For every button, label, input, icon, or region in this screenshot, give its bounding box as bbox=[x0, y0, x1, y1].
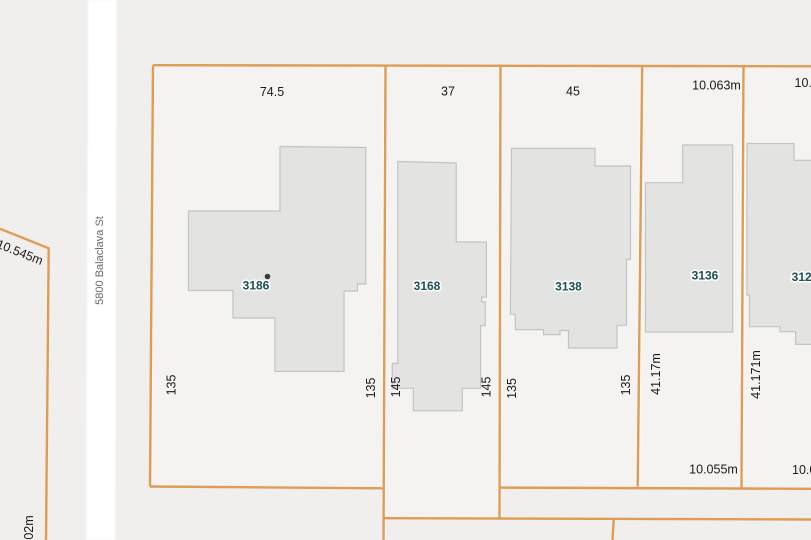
svg-text:5800 Balaclava St: 5800 Balaclava St bbox=[94, 216, 106, 305]
svg-text:3168: 3168 bbox=[414, 279, 441, 293]
svg-text:45: 45 bbox=[566, 85, 580, 99]
svg-text:10.055m: 10.055m bbox=[792, 463, 811, 477]
svg-text:135: 135 bbox=[364, 378, 378, 399]
svg-text:10.063m: 10.063m bbox=[795, 76, 811, 90]
svg-text:02m: 02m bbox=[22, 515, 36, 539]
svg-text:145: 145 bbox=[389, 377, 403, 398]
svg-text:37: 37 bbox=[441, 85, 455, 99]
svg-text:41.171m: 41.171m bbox=[749, 350, 763, 399]
svg-text:3126: 3126 bbox=[792, 270, 811, 284]
svg-text:3138: 3138 bbox=[555, 280, 582, 294]
svg-text:135: 135 bbox=[165, 375, 179, 396]
svg-text:41.17m: 41.17m bbox=[649, 353, 663, 395]
svg-text:135: 135 bbox=[505, 378, 519, 399]
svg-text:10.055m: 10.055m bbox=[689, 463, 738, 477]
svg-text:135: 135 bbox=[619, 375, 633, 396]
svg-text:145: 145 bbox=[480, 377, 494, 398]
svg-text:3186: 3186 bbox=[243, 279, 270, 293]
svg-text:10.063m: 10.063m bbox=[692, 79, 741, 93]
svg-text:74.5: 74.5 bbox=[260, 85, 284, 99]
svg-text:3136: 3136 bbox=[692, 269, 719, 283]
